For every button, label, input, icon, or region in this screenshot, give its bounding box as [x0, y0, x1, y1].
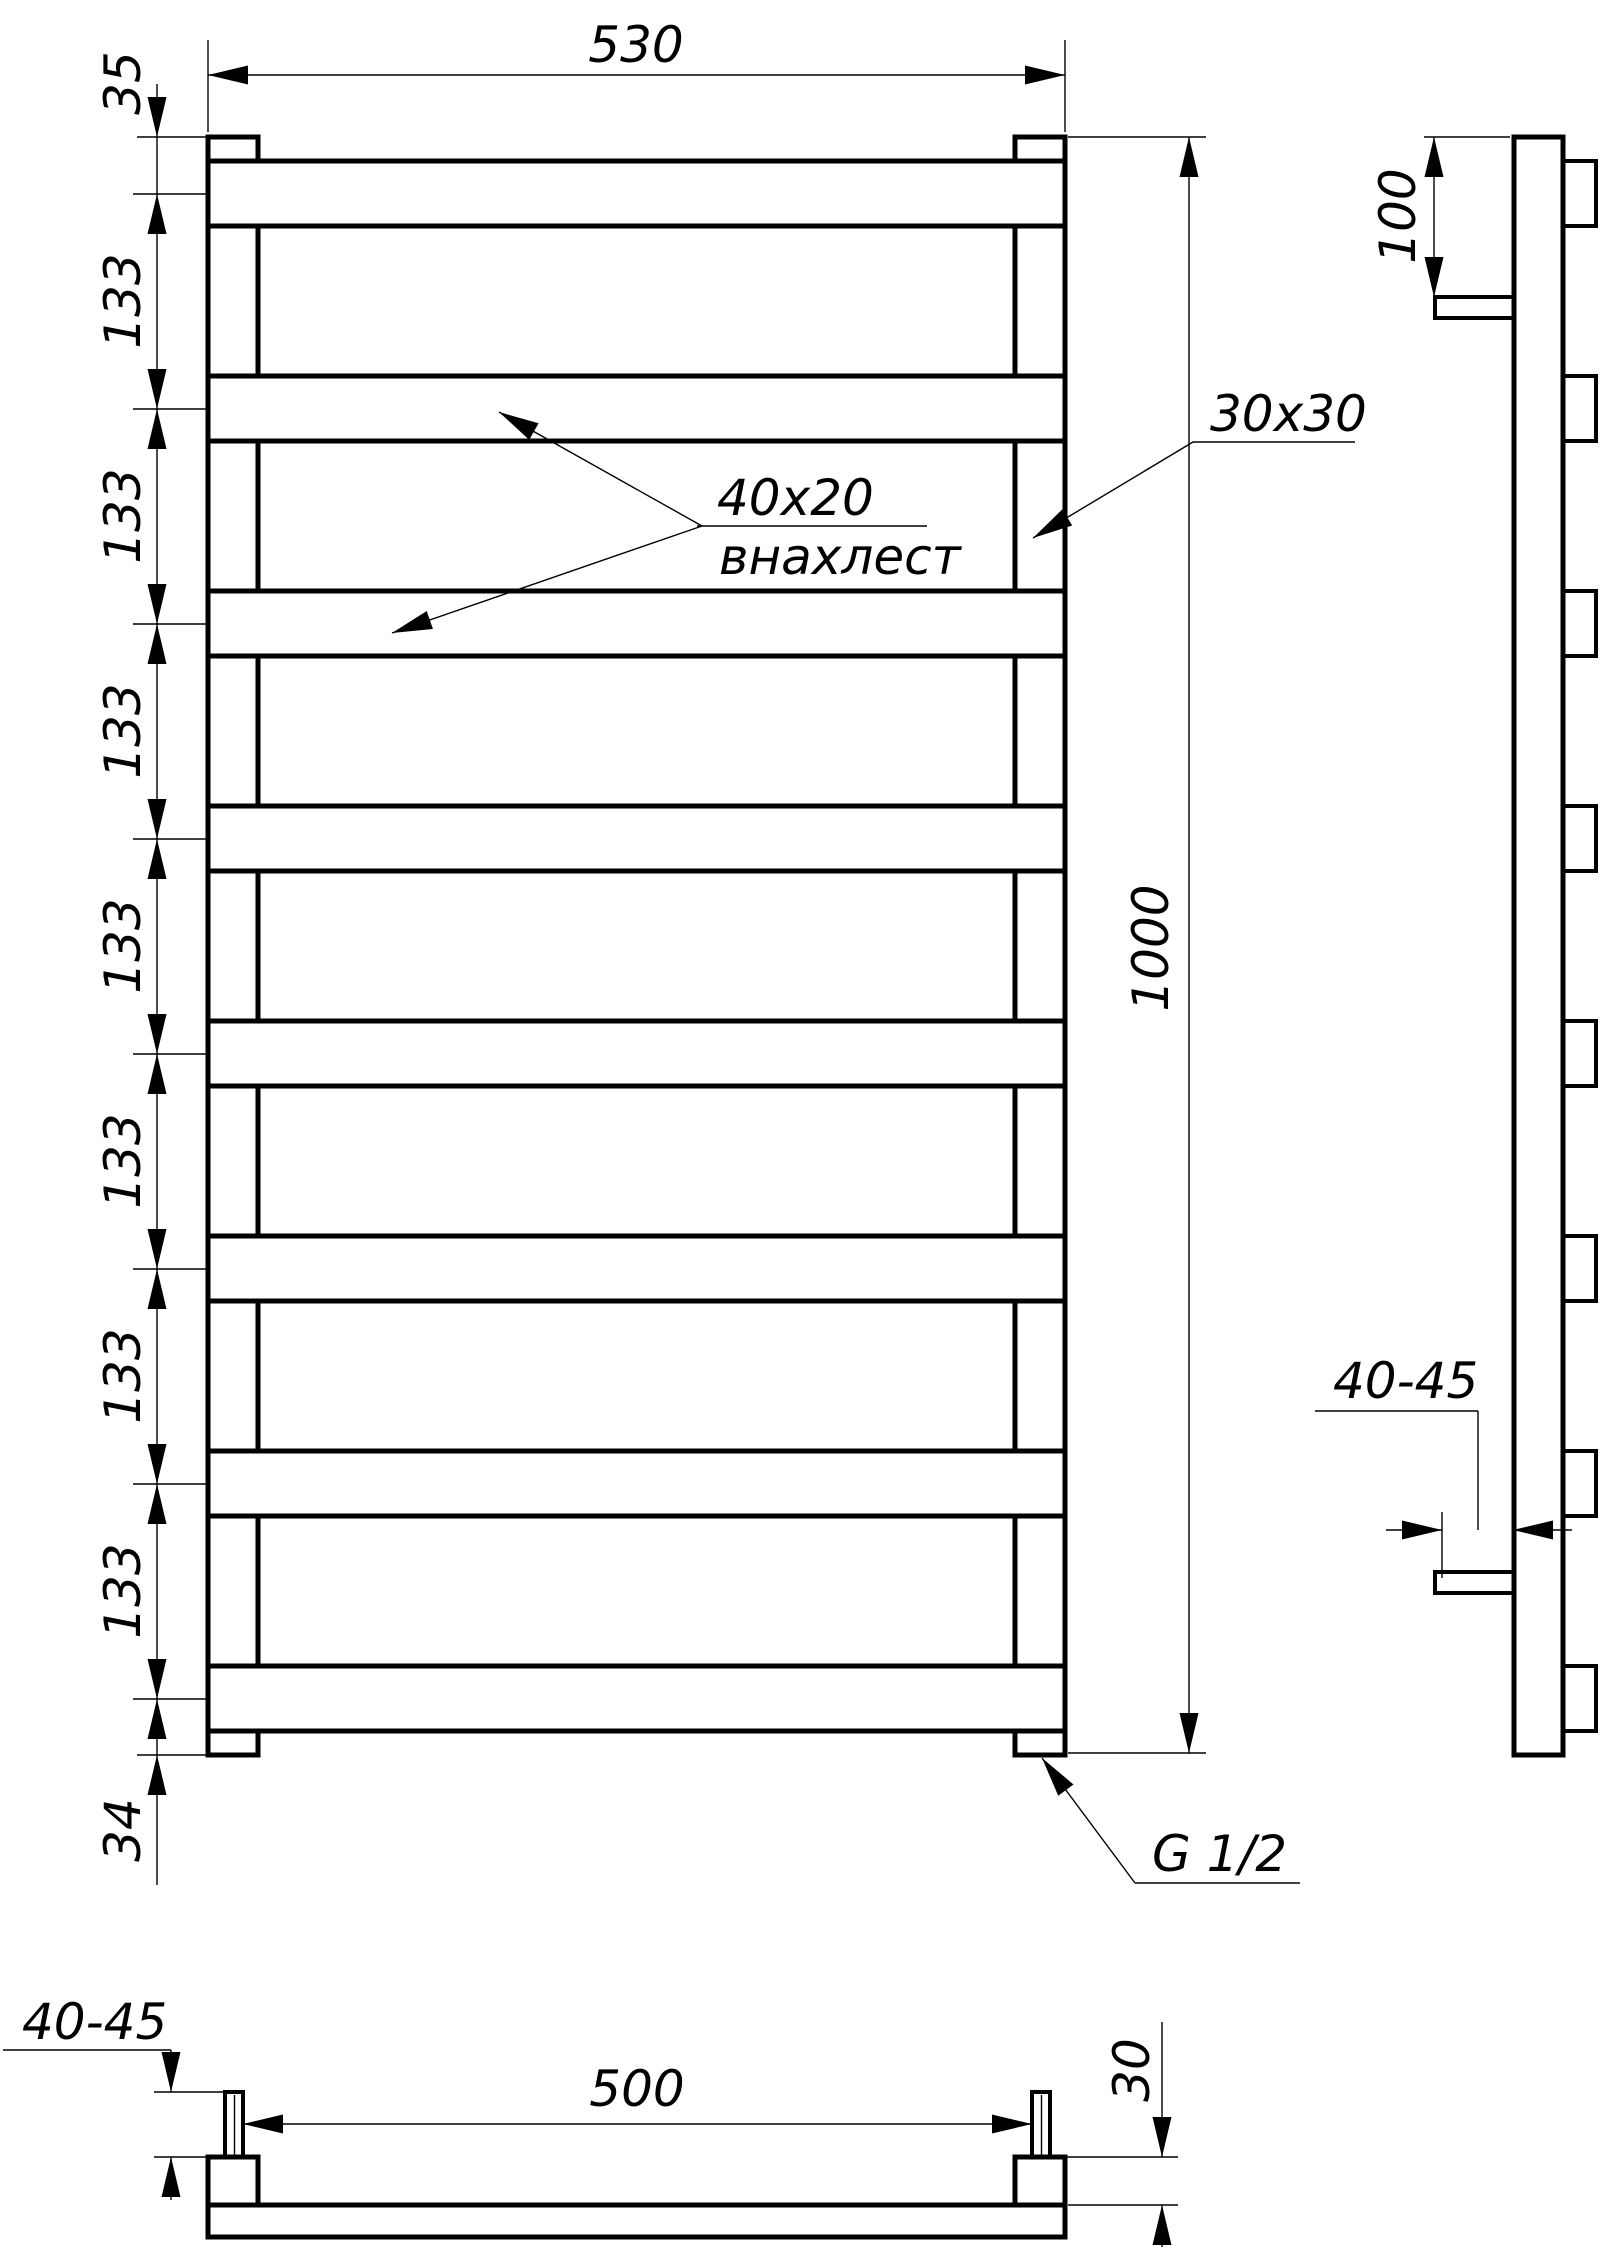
- rung: [208, 806, 1065, 871]
- rung-profile: [1561, 161, 1596, 226]
- dim-width-530: 530: [208, 16, 1065, 132]
- dim-spacing-label: 133: [94, 683, 152, 778]
- rung-plan: [208, 2205, 1065, 2237]
- rung: [208, 1236, 1065, 1301]
- rung-profile-label: 40x20: [717, 469, 874, 527]
- wall-clearance-label-top: 40-45: [22, 1993, 167, 2051]
- dim-bracket-offset-100: 100: [1369, 137, 1510, 297]
- post-centers-label: 500: [589, 2060, 684, 2118]
- dim-top-offset-label: 35: [94, 51, 152, 115]
- leader-thread: G 1/2: [1034, 1752, 1300, 1883]
- rung-profile: [1561, 1666, 1596, 1731]
- rungs: [208, 161, 1065, 1731]
- bracket-offset-label: 100: [1369, 168, 1427, 263]
- post-side: [1514, 137, 1563, 1755]
- dim-wall-clearance-top: 40-45: [3, 1993, 226, 2200]
- side-rung-profiles: [1561, 161, 1596, 1731]
- post-depth-label: 30: [1103, 2038, 1161, 2102]
- rung-profile: [1561, 376, 1596, 441]
- dim-bottom-offset-label: 34: [94, 1798, 152, 1862]
- wall-bracket-bottom: [1435, 1572, 1514, 1593]
- drawing-page: 530 35 133 133 133: [0, 0, 1600, 2251]
- rung-profile: [1561, 591, 1596, 656]
- rung: [208, 1666, 1065, 1731]
- dim-height-1000: 1000: [1068, 137, 1206, 1753]
- rung: [208, 1021, 1065, 1086]
- thread-size-label: G 1/2: [1152, 1825, 1287, 1883]
- rung-profile: [1561, 1451, 1596, 1516]
- rung-profile: [1561, 1236, 1596, 1301]
- dim-left-chain: 35 133 133 133 133 133 133 133 34: [94, 51, 211, 1885]
- top-view: 500 40-45 30: [3, 1993, 1178, 2247]
- rung: [208, 1451, 1065, 1516]
- front-view: [208, 137, 1065, 1755]
- dim-post-depth-30: 30: [1053, 2022, 1178, 2247]
- dim-spacing-label: 133: [94, 468, 152, 563]
- wall-clearance-label-side: 40-45: [1333, 1352, 1478, 1410]
- post-top-left: [208, 2157, 258, 2205]
- rung: [208, 376, 1065, 441]
- dim-height-label: 1000: [1122, 884, 1180, 1011]
- dim-width-label: 530: [588, 16, 683, 74]
- rung-profile: [1561, 1021, 1596, 1086]
- rung: [208, 591, 1065, 656]
- dim-spacing-label: 133: [94, 253, 152, 348]
- technical-drawing: 530 35 133 133 133: [0, 0, 1600, 2251]
- leader-post-profile: 30x30: [1028, 385, 1367, 546]
- rung-weld-label: внахлест: [719, 528, 963, 586]
- rung: [208, 161, 1065, 226]
- side-view: 100 40-45: [1315, 137, 1596, 1755]
- post-profile-label: 30x30: [1210, 385, 1367, 443]
- dim-spacing-label: 133: [94, 1328, 152, 1423]
- dim-spacing-label: 133: [94, 1543, 152, 1638]
- rung-profile: [1561, 806, 1596, 871]
- dim-spacing-label: 133: [94, 1113, 152, 1208]
- post-top-right: [1015, 2157, 1065, 2205]
- dim-spacing-label: 133: [94, 898, 152, 993]
- wall-bracket-top: [1435, 297, 1514, 318]
- dim-centers-500: 500: [243, 2060, 1032, 2134]
